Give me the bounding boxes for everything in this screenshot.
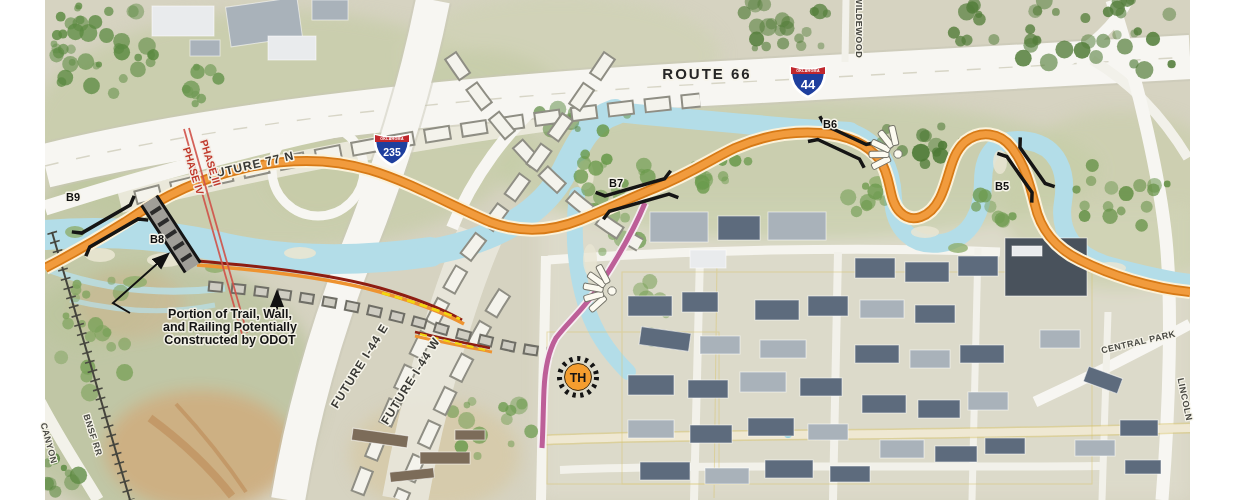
trailhead-label: TH [570, 371, 587, 385]
bridge-b5-label: B5 [995, 180, 1009, 192]
street-wildewood-label: WILDEWOOD [854, 0, 864, 58]
i235-shield-state: OKLAHOMA [380, 137, 404, 141]
trail-plan-map[interactable]: TH ROUTE 66 OKLAHOMA 44 OKLAHOMA 235 FUT… [0, 0, 1235, 500]
i235-shield-number: 235 [383, 146, 401, 158]
map-svg: TH ROUTE 66 OKLAHOMA 44 OKLAHOMA 235 FUT… [0, 0, 1235, 500]
i44-shield-number: 44 [801, 77, 816, 92]
bridge-b7-label: B7 [609, 177, 623, 189]
annotation-line2: and Railing Potentially [163, 320, 297, 334]
bridge-b9-label: B9 [66, 191, 80, 203]
annotation-line1: Portion of Trail, Wall, [168, 307, 292, 321]
bridge-b8-label: B8 [150, 233, 164, 245]
left-margin [0, 0, 45, 500]
bridge-b6-label: B6 [823, 118, 837, 130]
right-margin [1190, 0, 1235, 500]
i44-shield-state: OKLAHOMA [796, 69, 820, 73]
annotation-line3: Constructed by ODOT [164, 333, 296, 347]
route66-label: ROUTE 66 [662, 65, 751, 82]
